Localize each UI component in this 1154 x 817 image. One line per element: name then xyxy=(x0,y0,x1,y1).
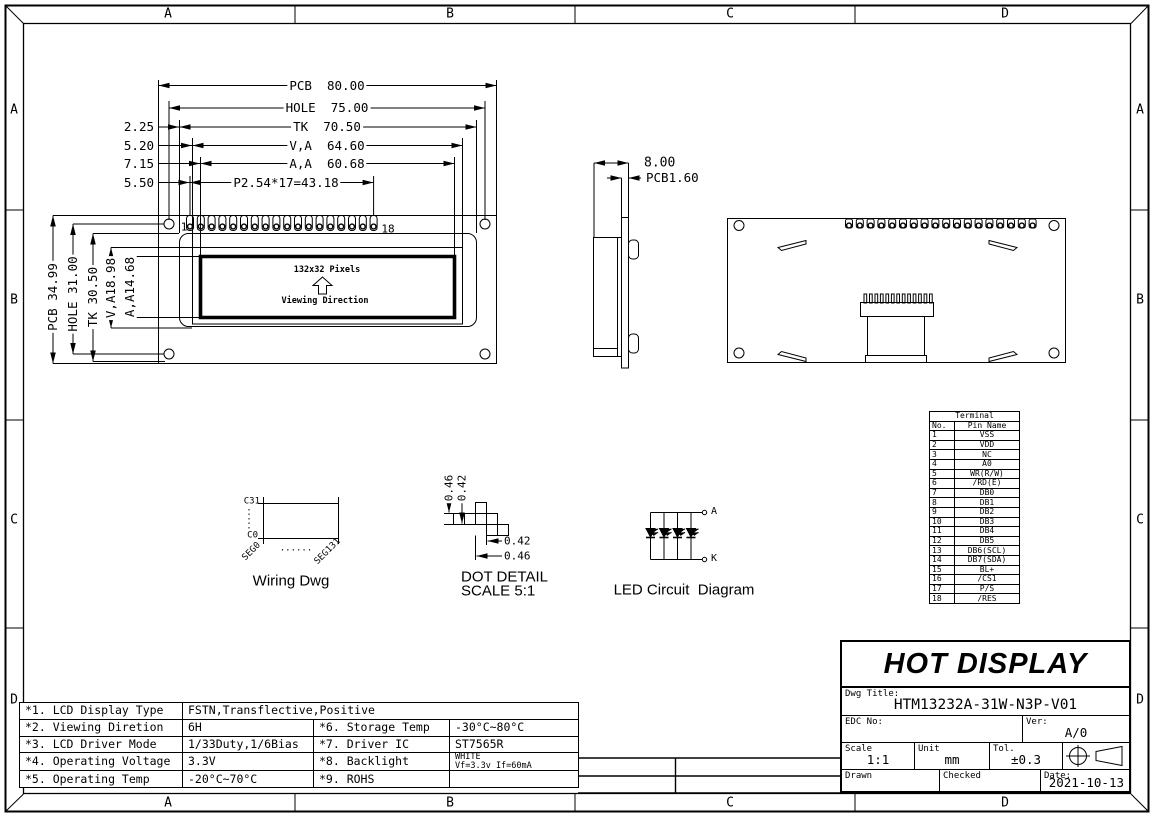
zone-right-a: A xyxy=(1136,104,1144,117)
zone-top-d: D xyxy=(1001,8,1009,21)
edc-row: EDC No: Ver: A/0 xyxy=(842,716,1129,743)
led-circuit-caption: LED Circuit Diagram xyxy=(614,583,755,598)
ver-cell: Ver: A/0 xyxy=(1022,716,1129,742)
spec-value: 1/33Duty,1/6Bias xyxy=(183,736,314,753)
dim-pcb-height: PCB 34.99 xyxy=(47,261,60,333)
terminal-row: 9DB2 xyxy=(930,507,1020,517)
led-anode-label: A xyxy=(711,507,717,517)
spec-label: *9. ROHS xyxy=(314,771,450,788)
tol-cell: Tol. ±0.3 xyxy=(989,743,1062,769)
terminal-row: 3NC xyxy=(930,450,1020,460)
dot-detail-scale: SCALE 5:1 xyxy=(461,584,535,599)
zone-top-a: A xyxy=(164,8,172,21)
unit-cell: Unit mm xyxy=(914,743,989,769)
scale-cell: Scale 1:1 xyxy=(842,743,914,769)
wiring-com-top: C31 xyxy=(244,498,260,507)
backlight-connector xyxy=(861,294,934,363)
terminal-table: Terminal No. Pin Name 1VSS 2VDD 3NC 4A0 … xyxy=(929,411,1020,604)
led-symbol xyxy=(646,529,699,538)
terminal-col-no: No. xyxy=(930,421,955,431)
mounting-clip xyxy=(989,241,1017,251)
wiring-com-bottom: C0 xyxy=(247,532,258,541)
mounting-clip xyxy=(778,352,806,362)
spec-value xyxy=(450,771,579,788)
dim-pin-pitch: P2.54*17=43.18 xyxy=(231,177,340,190)
terminal-row: 13DB6(SCL) xyxy=(930,546,1020,556)
spec-table: *1. LCD Display Type FSTN,Transflective,… xyxy=(19,702,579,788)
tol-value: ±0.3 xyxy=(990,752,1062,767)
spec-label: *7. Driver IC xyxy=(314,736,450,753)
spec-value: -30°C~80°C xyxy=(450,719,579,736)
terminal-row: 5WR(R/W) xyxy=(930,469,1020,479)
dim-hole-width: HOLE 75.00 xyxy=(284,102,371,115)
wiring-diagram-drawing xyxy=(249,497,339,544)
zone-bottom-a: A xyxy=(164,797,172,810)
terminal-row: 2VDD xyxy=(930,440,1020,450)
back-view xyxy=(728,219,1066,363)
spec-label: *6. Storage Temp xyxy=(314,719,450,736)
dim-va-width: V,A 64.60 xyxy=(287,140,366,153)
terminal-row: 17P/S xyxy=(930,584,1020,594)
title-block: HOT DISPLAY Dwg Title: HTM13232A-31W-N3P… xyxy=(840,640,1131,793)
ver-value: A/0 xyxy=(1023,725,1129,740)
pin-number-first: 1 xyxy=(181,222,188,233)
spec-extension-grid xyxy=(578,758,840,793)
spec-value: -20°C~70°C xyxy=(183,771,314,788)
spec-value: 6H xyxy=(183,719,314,736)
spec-value: FSTN,Transflective,Positive xyxy=(183,703,579,720)
dim-offset-3: 7.15 xyxy=(122,158,156,171)
dwg-title-value: HTM13232A-31W-N3P-V01 xyxy=(842,697,1129,713)
zone-top-b: B xyxy=(446,8,454,21)
dim-tk-height: TK 30.50 xyxy=(87,265,100,329)
spec-label: *5. Operating Temp xyxy=(20,771,183,788)
zone-bottom-c: C xyxy=(726,797,734,810)
dot-dim-v-outer: 0.46 xyxy=(444,473,455,504)
terminal-row: 11DB4 xyxy=(930,527,1020,537)
terminal-row: 18/RES xyxy=(930,594,1020,604)
dim-aa-height: A,A14.68 xyxy=(124,255,137,319)
dwg-title-row: Dwg Title: HTM13232A-31W-N3P-V01 xyxy=(842,688,1129,716)
spec-value: 3.3V xyxy=(183,753,314,771)
zone-right-d: D xyxy=(1136,694,1144,707)
spec-row: *3. LCD Driver Mode 1/33Duty,1/6Bias *7.… xyxy=(20,736,579,753)
edc-cell: EDC No: xyxy=(842,716,1022,742)
projection-cell xyxy=(1062,743,1129,769)
front-view xyxy=(159,216,497,364)
terminal-row: 4A0 xyxy=(930,459,1020,469)
spec-row: *4. Operating Voltage 3.3V *8. Backlight… xyxy=(20,753,579,771)
zone-left-a: A xyxy=(10,104,18,117)
backlight-rating: Vf=3.3v If=60mA xyxy=(455,762,578,771)
led-cathode-label: K xyxy=(711,554,717,564)
edc-label: EDC No: xyxy=(845,717,883,727)
terminal-col-name: Pin Name xyxy=(955,421,1020,431)
mounting-clip xyxy=(778,241,806,251)
zone-bottom-b: B xyxy=(446,797,454,810)
zone-right-c: C xyxy=(1136,514,1144,527)
company-brand: HOT DISPLAY xyxy=(842,642,1129,688)
unit-value: mm xyxy=(915,752,989,767)
zone-bottom-d: D xyxy=(1001,797,1009,810)
spec-label: *4. Operating Voltage xyxy=(20,753,183,771)
zone-left-c: C xyxy=(10,514,18,527)
dot-dim-v-inner: 0.42 xyxy=(457,473,468,504)
spec-label: *1. LCD Display Type xyxy=(20,703,183,720)
lcd-pixel-format: 132x32 Pixels xyxy=(294,266,361,275)
zone-top-c: C xyxy=(726,8,734,21)
projection-symbol-icon xyxy=(1064,743,1128,769)
viewing-direction-arrow-icon xyxy=(313,277,332,294)
spec-value: ST7565R xyxy=(450,736,579,753)
dim-hole-height: HOLE 31.00 xyxy=(67,254,80,333)
dim-aa-width: A,A 60.68 xyxy=(287,158,366,171)
terminal-row: 8DB1 xyxy=(930,498,1020,508)
wiring-dots: ...... xyxy=(280,545,313,554)
zone-right-b: B xyxy=(1136,294,1144,307)
spec-label: *8. Backlight xyxy=(314,753,450,771)
zone-left-d: D xyxy=(10,694,18,707)
dim-pcb-width: PCB 80.00 xyxy=(287,80,366,93)
spec-row: *1. LCD Display Type FSTN,Transflective,… xyxy=(20,703,579,720)
date-value: 2021-10-13 xyxy=(1049,775,1124,790)
spec-row: *5. Operating Temp -20°C~70°C *9. ROHS xyxy=(20,771,579,788)
dot-dim-h-inner: 0.42 xyxy=(504,536,531,547)
terminal-row: 12DB5 xyxy=(930,536,1020,546)
checked-cell: Checked xyxy=(939,770,1040,791)
signature-row: Drawn Checked Date: 2021-10-13 xyxy=(842,770,1129,791)
viewing-direction-label: Viewing Direction xyxy=(282,297,369,306)
spec-value: WHITE Vf=3.3v If=60mA xyxy=(450,753,579,771)
side-view xyxy=(594,163,642,368)
terminal-row: 10DB3 xyxy=(930,517,1020,527)
terminal-row: 16/CS1 xyxy=(930,575,1020,585)
wiring-caption: Wiring Dwg xyxy=(253,574,330,589)
dim-tk-width: TK 70.50 xyxy=(291,121,363,134)
dot-dim-h-outer: 0.46 xyxy=(504,551,531,562)
terminal-row: 1VSS xyxy=(930,431,1020,441)
spec-label: *3. LCD Driver Mode xyxy=(20,736,183,753)
pin-number-last: 18 xyxy=(381,224,394,235)
scale-value: 1:1 xyxy=(842,752,914,767)
terminal-row: 15BL+ xyxy=(930,565,1020,575)
checked-label: Checked xyxy=(943,771,981,781)
spec-label: *2. Viewing Diretion xyxy=(20,719,183,736)
terminal-header-row: No. Pin Name xyxy=(930,421,1020,431)
dim-pcb-thickness: PCB1.60 xyxy=(644,172,701,185)
terminal-row: 7DB0 xyxy=(930,488,1020,498)
mounting-clip xyxy=(989,352,1017,362)
dim-offset-2: 5.20 xyxy=(122,140,156,153)
dot-detail-drawing xyxy=(444,498,509,560)
dim-offset-4: 5.50 xyxy=(122,177,156,190)
terminal-row: 14DB7(SDA) xyxy=(930,555,1020,565)
date-cell: Date: 2021-10-13 xyxy=(1040,770,1129,791)
dim-module-thickness: 8.00 xyxy=(642,157,677,170)
spec-row: *2. Viewing Diretion 6H *6. Storage Temp… xyxy=(20,719,579,736)
dim-va-height: V,A18.98 xyxy=(105,256,118,320)
zone-left-b: B xyxy=(10,294,18,307)
terminal-row: 6/RD(E) xyxy=(930,479,1020,489)
dim-offset-1: 2.25 xyxy=(122,121,156,134)
drawn-label: Drawn xyxy=(845,771,872,781)
terminal-title-row: Terminal xyxy=(930,412,1020,422)
drawn-cell: Drawn xyxy=(842,770,939,791)
terminal-title: Terminal xyxy=(930,412,1020,422)
scale-row: Scale 1:1 Unit mm Tol. ±0.3 xyxy=(842,743,1129,770)
led-circuit-drawing xyxy=(646,510,707,561)
engineering-drawing-sheet: A B C D A B C D A B C D A B C D PCB 80.0… xyxy=(0,0,1154,817)
